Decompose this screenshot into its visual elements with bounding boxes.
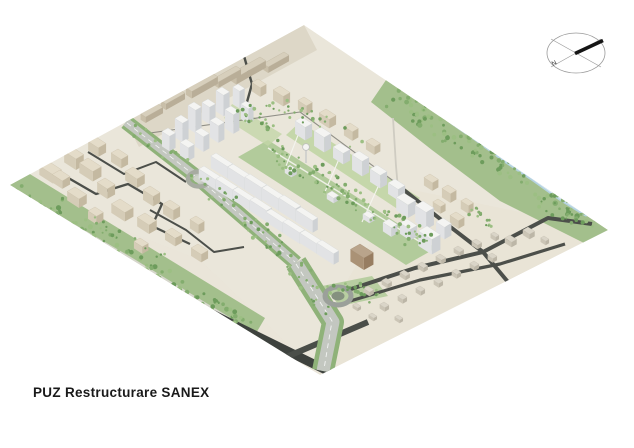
tree (443, 116, 448, 121)
tree (423, 109, 425, 111)
tree (499, 166, 503, 170)
tree (478, 136, 483, 141)
tree (526, 169, 530, 173)
tree (114, 236, 116, 238)
tree (565, 218, 567, 220)
tree (411, 119, 415, 123)
tree (225, 193, 227, 195)
tree (593, 211, 597, 215)
tree (20, 184, 24, 188)
tree (476, 134, 479, 137)
tree (283, 160, 285, 162)
tree (454, 142, 457, 145)
tree (44, 210, 48, 214)
tree (498, 151, 503, 156)
tree (354, 289, 358, 293)
tree (335, 175, 338, 178)
tree (558, 180, 563, 185)
tree (530, 172, 533, 175)
tree (384, 212, 386, 214)
tree (131, 117, 133, 119)
tree (244, 120, 247, 123)
tree (286, 266, 288, 268)
tree (111, 233, 115, 237)
tree (163, 253, 166, 256)
tree (232, 325, 235, 328)
tree (545, 194, 550, 199)
tree (218, 187, 221, 190)
tree (245, 114, 248, 117)
tree (134, 124, 137, 127)
tree (336, 183, 338, 185)
tree (460, 146, 463, 149)
tree (168, 269, 172, 273)
tree (328, 171, 331, 174)
tree (112, 251, 116, 255)
tree (102, 232, 104, 234)
tree (300, 264, 303, 267)
tree (398, 222, 402, 226)
tree (139, 255, 143, 259)
tree (476, 133, 480, 137)
tree (55, 216, 60, 221)
tree (259, 113, 262, 116)
tree (288, 265, 291, 268)
tree (342, 193, 344, 195)
tree (146, 145, 149, 148)
tree (470, 209, 473, 212)
tree (359, 191, 362, 194)
tree (299, 286, 303, 290)
tree (103, 240, 106, 243)
tree (43, 214, 46, 217)
tree (375, 289, 378, 292)
tree (284, 166, 287, 169)
tree (269, 245, 272, 248)
tree (316, 286, 319, 289)
tree (84, 218, 87, 221)
tree (564, 187, 567, 190)
tree (312, 285, 314, 287)
tree (88, 234, 91, 237)
tree (405, 233, 407, 235)
tree (319, 126, 321, 128)
tree (206, 177, 209, 180)
tree (554, 184, 558, 188)
tree (568, 215, 570, 217)
tree (80, 236, 83, 239)
building (188, 102, 202, 133)
tree (559, 191, 564, 196)
tree (278, 245, 281, 248)
tree (406, 96, 410, 100)
tree (398, 97, 401, 100)
tree (325, 116, 327, 118)
tree (211, 196, 213, 198)
tree (84, 228, 87, 231)
tree (99, 242, 103, 246)
tree (417, 97, 422, 102)
tree (200, 302, 205, 307)
tree (346, 288, 349, 291)
tree (479, 145, 484, 150)
tree (250, 221, 253, 224)
tree (485, 224, 487, 226)
tree (347, 192, 349, 194)
tree (452, 135, 457, 140)
tree (442, 124, 445, 127)
tree (149, 266, 153, 270)
tree (208, 309, 211, 312)
tree (255, 219, 257, 221)
tree (301, 116, 304, 119)
tree (210, 304, 215, 309)
tree (476, 215, 479, 218)
tree (404, 100, 409, 105)
tree (195, 295, 199, 299)
tree (273, 108, 275, 110)
sheet: N PUZ Restructurare SANEX (0, 0, 634, 448)
tree (403, 243, 406, 246)
tree (257, 227, 261, 231)
tree (393, 226, 395, 228)
tree (276, 160, 278, 162)
tree (580, 213, 583, 216)
tree (497, 158, 502, 163)
tree (312, 300, 315, 303)
tree (363, 286, 365, 288)
tree (545, 210, 547, 212)
tree (40, 205, 45, 210)
tree (276, 154, 280, 158)
tree (424, 104, 428, 108)
tree (567, 191, 572, 196)
tree (232, 203, 236, 207)
tree (298, 157, 300, 159)
tree (415, 99, 418, 102)
tree (487, 141, 492, 146)
tree (252, 107, 256, 111)
tree (324, 312, 327, 315)
tree (300, 109, 303, 112)
tree (110, 251, 114, 255)
tree (293, 111, 295, 113)
tree (199, 302, 202, 305)
building (175, 115, 189, 142)
tree (564, 195, 567, 198)
tree (181, 294, 184, 297)
tree (52, 207, 55, 210)
tree (281, 147, 284, 150)
masterplan-rendering: N (0, 0, 634, 448)
tree (233, 314, 238, 319)
tree (471, 154, 475, 158)
tree (415, 112, 419, 116)
tree (473, 134, 478, 139)
tree (477, 136, 481, 140)
tree (546, 175, 550, 179)
tree (345, 201, 348, 204)
tree (130, 263, 135, 268)
tree (337, 185, 339, 187)
tree (362, 198, 366, 202)
tree (315, 299, 317, 301)
tree (76, 233, 80, 237)
tree (359, 282, 363, 286)
tree (360, 140, 364, 144)
tree (414, 230, 416, 232)
tree (501, 160, 505, 164)
tree (327, 306, 329, 308)
tree (224, 307, 229, 312)
tree (318, 117, 321, 120)
tree (537, 196, 542, 201)
tree (536, 173, 540, 177)
tree (145, 264, 148, 267)
tree (321, 163, 325, 167)
tree (397, 89, 401, 93)
tree (262, 231, 264, 233)
tree (315, 168, 319, 172)
tree (267, 228, 270, 231)
tree (298, 276, 300, 278)
tree (276, 139, 279, 142)
tree (154, 139, 157, 142)
tree (346, 194, 350, 198)
tree (200, 178, 202, 180)
tree (419, 242, 421, 244)
tree (569, 208, 572, 211)
tree (310, 110, 313, 113)
tree (102, 220, 105, 223)
north-needle-icon (575, 41, 603, 54)
tree (297, 164, 301, 168)
tree (374, 217, 376, 219)
tree (288, 272, 292, 276)
tree (354, 189, 358, 193)
tree (232, 320, 237, 325)
tree (566, 207, 569, 210)
tree (409, 110, 413, 114)
tree (255, 236, 257, 238)
tree (69, 224, 72, 227)
tree (430, 124, 433, 127)
tree (288, 167, 292, 171)
tree (570, 213, 573, 216)
tree (142, 267, 145, 270)
tree (278, 109, 280, 111)
tree (567, 187, 570, 190)
tree (40, 205, 45, 210)
tree (520, 163, 524, 167)
tree (364, 203, 367, 206)
tree (418, 224, 422, 228)
tree (415, 233, 418, 236)
tree (83, 235, 86, 238)
tree (496, 146, 499, 149)
tree (173, 290, 177, 294)
tree (156, 277, 159, 280)
tree (426, 240, 428, 242)
tree (343, 126, 347, 130)
tree (92, 239, 96, 243)
tree (543, 197, 546, 200)
tree (266, 127, 270, 131)
tree (305, 279, 308, 282)
tree (249, 104, 252, 107)
tree (553, 194, 557, 198)
tree (65, 223, 70, 228)
tree (372, 211, 374, 213)
tree (467, 135, 472, 140)
tree (540, 202, 542, 204)
tree (302, 177, 304, 179)
tree (241, 108, 245, 112)
tree (28, 204, 33, 209)
tree (367, 203, 369, 205)
tree (177, 286, 182, 291)
tree (498, 151, 501, 154)
tree (480, 160, 484, 164)
tree (324, 120, 326, 122)
tree (558, 207, 561, 210)
tree (144, 247, 146, 249)
tree (520, 181, 523, 184)
tree (272, 124, 275, 127)
tree (541, 201, 543, 203)
tree (517, 172, 521, 176)
tree (507, 158, 512, 163)
tree (368, 301, 371, 304)
tree (265, 240, 267, 242)
tree (449, 118, 454, 123)
tree (340, 189, 344, 193)
tree (129, 250, 134, 255)
tree (475, 207, 478, 210)
tree (488, 225, 490, 227)
tree (145, 128, 147, 130)
tree (281, 167, 284, 170)
tree (420, 98, 423, 101)
tree (281, 241, 283, 243)
tree (554, 202, 556, 204)
tree (235, 196, 238, 199)
tree (73, 230, 78, 235)
tree (62, 221, 66, 225)
tree (467, 213, 471, 217)
tree (375, 293, 378, 296)
tree (314, 181, 317, 184)
tree (14, 188, 18, 192)
tree (479, 212, 482, 215)
tree (567, 187, 570, 190)
tree (369, 219, 372, 222)
tree (541, 177, 544, 180)
tree (264, 118, 267, 121)
tree (302, 121, 304, 123)
tree (432, 133, 436, 137)
tree (409, 103, 413, 107)
tree (139, 132, 142, 135)
tree (359, 292, 362, 295)
tree (595, 206, 600, 211)
tree (513, 167, 516, 170)
tree (336, 196, 340, 200)
tree (184, 297, 187, 300)
tree (208, 198, 211, 201)
tree (363, 293, 366, 296)
tree (424, 234, 427, 237)
tree (92, 233, 97, 238)
tree (445, 135, 450, 140)
tree (288, 116, 291, 119)
tree (507, 161, 510, 164)
tree (491, 146, 494, 149)
tree (396, 232, 399, 235)
tree (486, 219, 489, 222)
tree (497, 171, 502, 176)
tree (337, 288, 341, 292)
tree (134, 237, 137, 240)
tree (80, 227, 85, 232)
tree (537, 205, 541, 209)
tree (171, 282, 176, 287)
tree (453, 123, 457, 127)
tree (265, 222, 269, 226)
tree (561, 198, 565, 202)
tree (42, 206, 46, 210)
tree (9, 193, 13, 197)
tree (343, 183, 347, 187)
tree (100, 227, 102, 229)
tree (287, 110, 289, 112)
tree (128, 262, 133, 267)
tree (251, 236, 255, 240)
tree (575, 218, 579, 222)
tree (344, 282, 347, 285)
tree (249, 321, 252, 324)
tree (508, 175, 512, 179)
tree (394, 214, 398, 218)
tree (59, 211, 62, 214)
tree (346, 285, 349, 288)
tree (94, 216, 96, 218)
tree (553, 185, 557, 189)
tree (328, 291, 332, 295)
tree (155, 274, 160, 279)
tree (148, 271, 151, 274)
tree (278, 163, 281, 166)
tree (258, 116, 260, 118)
tree (163, 280, 166, 283)
tree (351, 202, 355, 206)
tree (247, 229, 249, 231)
tree (289, 254, 293, 258)
tree (202, 292, 205, 295)
tree (459, 135, 463, 139)
tree (61, 197, 64, 200)
tree (509, 156, 513, 160)
roundabout-south-island (332, 292, 345, 301)
tree (490, 225, 493, 228)
building-face (182, 120, 188, 142)
tree (232, 309, 237, 314)
tree (581, 220, 585, 224)
tree (507, 172, 510, 175)
tree (190, 174, 193, 177)
tree (186, 158, 189, 161)
tree (268, 104, 271, 107)
